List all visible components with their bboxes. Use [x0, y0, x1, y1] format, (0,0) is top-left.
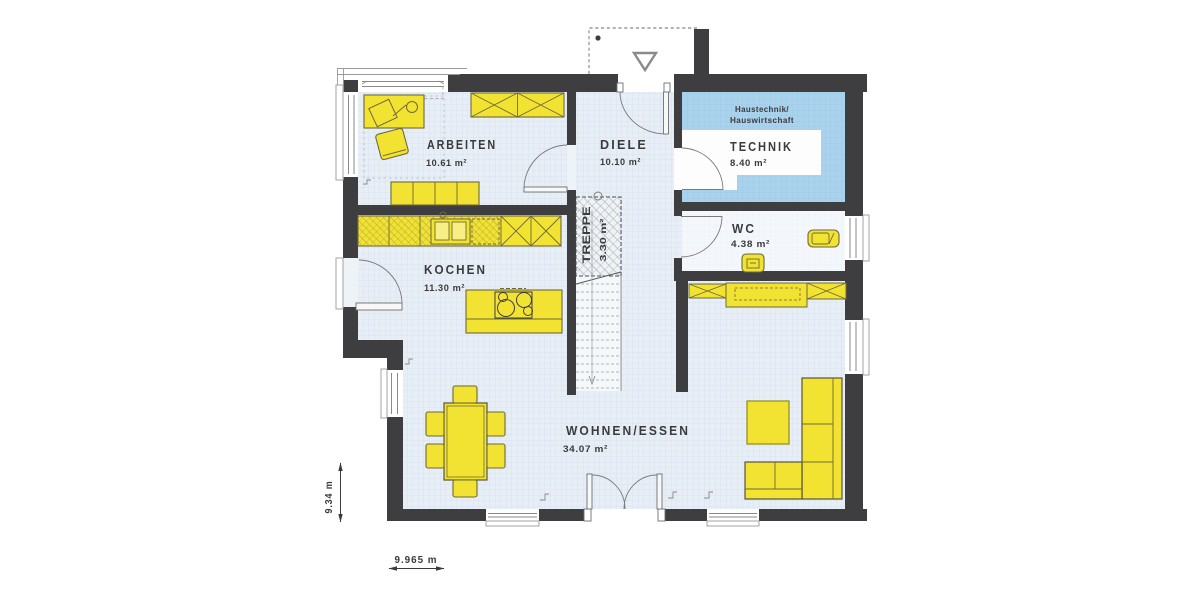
svg-text:4.38 m²: 4.38 m²: [731, 239, 770, 250]
svg-text:10.10 m²: 10.10 m²: [600, 157, 641, 168]
svg-text:8.40 m²: 8.40 m²: [730, 158, 767, 169]
svg-text:KOCHEN: KOCHEN: [424, 263, 487, 277]
svg-text:Haustechnik/: Haustechnik/: [735, 105, 789, 114]
svg-text:TREPPE: TREPPE: [581, 207, 593, 264]
svg-text:TECHNIK: TECHNIK: [730, 140, 793, 154]
svg-text:DIELE: DIELE: [600, 138, 648, 152]
svg-text:WC: WC: [732, 222, 756, 236]
svg-text:Hauswirtschaft: Hauswirtschaft: [730, 116, 794, 125]
svg-text:34.07 m²: 34.07 m²: [563, 444, 608, 455]
svg-text:ARBEITEN: ARBEITEN: [427, 138, 497, 152]
svg-text:3.30 m²: 3.30 m²: [599, 218, 608, 262]
svg-text:9.965 m: 9.965 m: [395, 555, 438, 566]
svg-text:11.30 m²: 11.30 m²: [424, 283, 465, 294]
svg-text:10.61 m²: 10.61 m²: [426, 158, 467, 169]
svg-text:9.34 m: 9.34 m: [324, 481, 335, 514]
svg-text:WOHNEN/ESSEN: WOHNEN/ESSEN: [566, 424, 690, 438]
